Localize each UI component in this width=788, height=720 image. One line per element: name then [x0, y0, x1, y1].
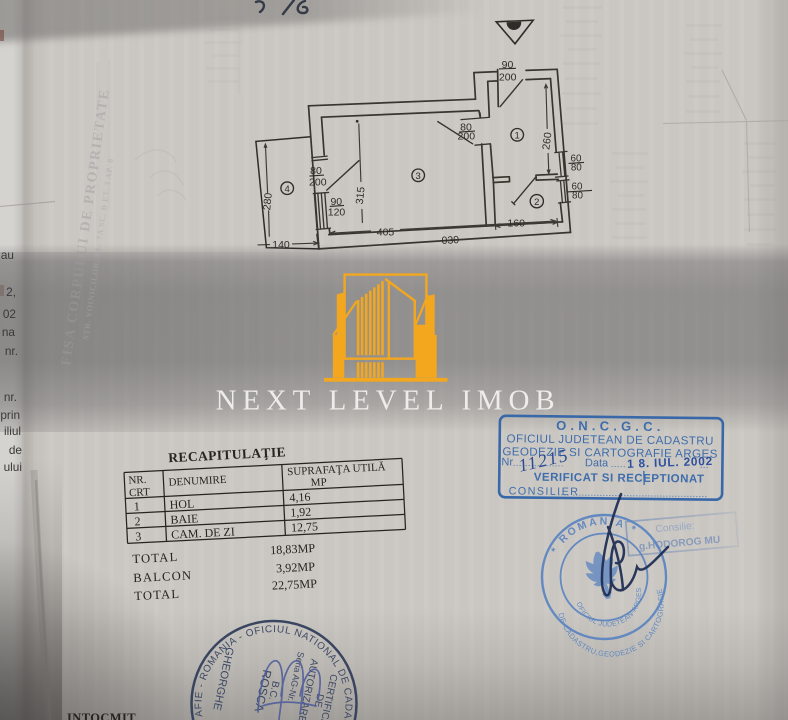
- svg-text:nr.: nr.: [5, 344, 18, 358]
- svg-text:2: 2: [534, 197, 539, 208]
- svg-text:3: 3: [416, 171, 421, 182]
- svg-text:.... ........................: .... ...................................…: [558, 487, 708, 499]
- svg-text:200: 200: [499, 71, 517, 83]
- svg-text:TOTAL: TOTAL: [132, 550, 179, 566]
- svg-text:1 8. IUL. 2002: 1 8. IUL. 2002: [627, 454, 713, 471]
- svg-text:030: 030: [441, 234, 459, 247]
- svg-text:CAM. DE ZI: CAM. DE ZI: [171, 524, 235, 541]
- svg-text:DENUMIRE: DENUMIRE: [168, 474, 227, 489]
- svg-text:1: 1: [133, 499, 140, 513]
- svg-text:1: 1: [515, 130, 520, 141]
- svg-text:1,92: 1,92: [290, 505, 312, 520]
- svg-text:260: 260: [540, 131, 554, 150]
- svg-text:nr.: nr.: [4, 390, 17, 404]
- svg-text:O.N.C.G.C.: O.N.C.G.C.: [556, 418, 665, 434]
- svg-text:Consilie:: Consilie:: [655, 521, 695, 535]
- svg-text:BALCON: BALCON: [133, 568, 193, 585]
- svg-text:CRT: CRT: [129, 486, 151, 499]
- svg-text:RECAPITULAŢIE: RECAPITULAŢIE: [168, 444, 286, 465]
- svg-text:de: de: [9, 443, 23, 457]
- svg-text:prin: prin: [0, 408, 20, 422]
- svg-text:MP: MP: [310, 476, 326, 489]
- svg-text:HOL: HOL: [169, 496, 194, 511]
- svg-text:Nr: Nr: [501, 456, 513, 468]
- svg-text:DE CADASTRU,GEODEZIE SI CARTOG: DE CADASTRU,GEODEZIE SI CARTOGRAFIE: [557, 587, 678, 670]
- svg-text:405: 405: [377, 227, 395, 239]
- svg-text:2,: 2,: [6, 285, 16, 299]
- svg-text:22,75MP: 22,75MP: [272, 576, 318, 592]
- svg-text:BAIE: BAIE: [170, 511, 199, 526]
- svg-text:3: 3: [135, 529, 142, 543]
- svg-text:80: 80: [572, 191, 583, 202]
- svg-text:NEXT LEVEL IMOB: NEXT LEVEL IMOB: [216, 385, 561, 417]
- svg-text:iliul: iliul: [4, 424, 21, 438]
- svg-text:na: na: [2, 325, 16, 339]
- svg-text:INTOCMIT: INTOCMIT: [67, 711, 136, 720]
- svg-text:4,16: 4,16: [289, 490, 311, 505]
- svg-text:140: 140: [272, 239, 290, 251]
- svg-text:Data: Data: [585, 457, 609, 469]
- svg-text:315: 315: [354, 186, 368, 205]
- svg-text:VERIFICAT SI RECEPTIONAT: VERIFICAT SI RECEPTIONAT: [534, 472, 705, 486]
- svg-text:12,75: 12,75: [291, 519, 319, 534]
- svg-text:ului: ului: [4, 460, 22, 474]
- svg-text:80: 80: [571, 163, 582, 174]
- svg-text:GHEORGHE: GHEORGHE: [210, 646, 235, 711]
- svg-text:TOTAL: TOTAL: [134, 587, 181, 603]
- svg-text:160: 160: [507, 218, 525, 230]
- svg-text:3,92MP: 3,92MP: [276, 559, 316, 575]
- svg-text:18,83MP: 18,83MP: [270, 541, 316, 557]
- svg-text:.....: .....: [611, 459, 626, 469]
- svg-text:02: 02: [3, 307, 16, 321]
- svg-text:NR.: NR.: [128, 474, 147, 487]
- svg-text:200: 200: [309, 176, 327, 188]
- svg-text:* ROMANIA *: * ROMANIA *: [544, 506, 642, 558]
- svg-text:2: 2: [134, 514, 141, 528]
- svg-text:120: 120: [328, 206, 346, 218]
- svg-text:4: 4: [285, 184, 290, 195]
- svg-text:au: au: [1, 248, 14, 262]
